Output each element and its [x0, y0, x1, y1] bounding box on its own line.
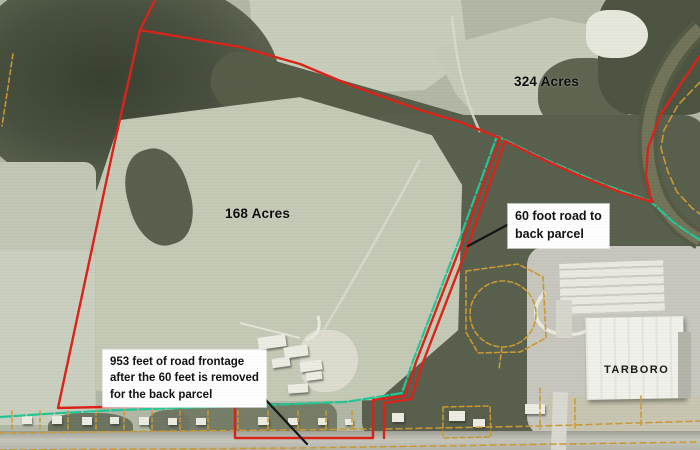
callout-953-feet-frontage: 953 feet of road frontage after the 60 f… — [103, 350, 266, 407]
river-lot-line — [661, 82, 700, 214]
left-edge-lot-line — [2, 54, 13, 126]
road-lot-line-north-east — [386, 421, 700, 429]
tarboro-building-label: TARBORO — [604, 364, 669, 376]
road-lot-line-south — [0, 442, 700, 450]
road-lot-line-north-west — [0, 429, 372, 433]
woods-parcel-outline — [466, 264, 546, 353]
east-lot-rect — [443, 406, 491, 438]
river-red-boundary — [646, 56, 700, 202]
woods-parcel-stub — [499, 347, 502, 369]
acreage-label-324: 324 Acres — [514, 74, 579, 89]
callout-60-foot-road: 60 foot road to back parcel — [508, 204, 609, 248]
woods-parcel-circle — [470, 281, 536, 347]
acreage-label-168: 168 Acres — [225, 206, 290, 221]
aerial-parcel-map: 324 Acres 168 Acres TARBORO 60 foot road… — [0, 0, 700, 450]
